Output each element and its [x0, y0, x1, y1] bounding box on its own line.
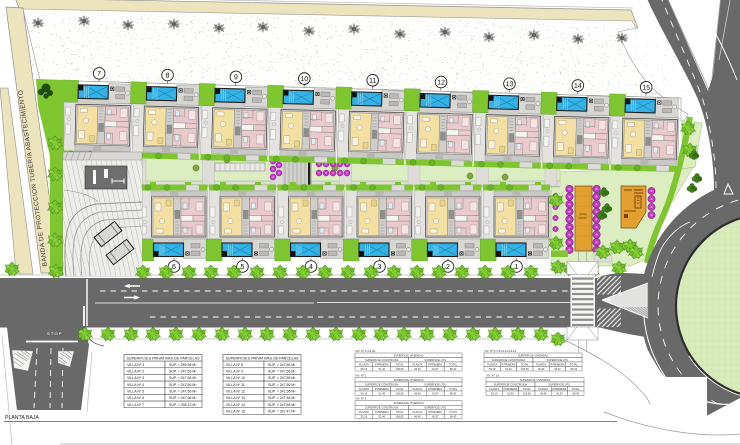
- svg-text:VIV. Nº 1: VIV. Nº 1: [355, 373, 367, 377]
- svg-text:SUPERFICIE CONSTRUIDA: SUPERFICIE CONSTRUIDA: [492, 358, 526, 362]
- svg-text:106,65: 106,65: [523, 391, 531, 395]
- svg-text:SUPERFICIE VIVIENDAS: SUPERFICIE VIVIENDAS: [393, 401, 423, 405]
- svg-text:VIV. Nº 3-4-6 (a): VIV. Nº 3-4-6 (a): [355, 349, 375, 353]
- svg-text:APARC.: APARC.: [578, 216, 588, 220]
- svg-text:PLANTA: PLANTA: [538, 387, 548, 391]
- svg-text:TOTAL: TOTAL: [396, 410, 405, 414]
- svg-text:106,65: 106,65: [396, 367, 404, 371]
- svg-text:VILLA Nº 7: VILLA Nº 7: [127, 403, 144, 407]
- svg-text:VILLA Nº 5: VILLA Nº 5: [127, 390, 144, 394]
- svg-text:P.PRIMERA: P.PRIMERA: [502, 362, 516, 366]
- svg-text:46,46: 46,46: [414, 391, 421, 395]
- svg-text:55,19: 55,19: [489, 367, 496, 371]
- svg-text:89,43: 89,43: [571, 367, 578, 371]
- svg-text:VILLA Nº 4: VILLA Nº 4: [127, 383, 144, 387]
- svg-text:SUP. = 336,13 M²: SUP. = 336,13 M²: [169, 403, 197, 407]
- svg-text:SUPERFICIE UTIL: SUPERFICIE UTIL: [547, 358, 569, 362]
- svg-text:TOTAL: TOTAL: [449, 387, 458, 391]
- svg-text:SUP. = 247,56 M²: SUP. = 247,56 M²: [268, 383, 296, 387]
- svg-text:VILLA Nº 2: VILLA Nº 2: [127, 370, 144, 374]
- svg-text:SUP. = 247,56 M²: SUP. = 247,56 M²: [268, 396, 296, 400]
- svg-text:SUP. = 247,56 M²: SUP. = 247,56 M²: [169, 383, 197, 387]
- svg-text:12: 12: [437, 79, 445, 86]
- svg-text:55,19: 55,19: [491, 391, 498, 395]
- svg-text:2: 2: [446, 264, 450, 271]
- svg-text:P.PRIMERA: P.PRIMERA: [428, 362, 442, 366]
- svg-text:42,97: 42,97: [432, 367, 439, 371]
- svg-text:SUP. = 247,56 M²: SUP. = 247,56 M²: [268, 376, 296, 380]
- svg-text:PLANTA: PLANTA: [412, 410, 422, 414]
- svg-text:3: 3: [378, 264, 382, 271]
- svg-text:10: 10: [300, 76, 308, 83]
- svg-text:SUP. = 247,56 M²: SUP. = 247,56 M²: [268, 403, 296, 407]
- svg-text:VIV. Nº 5-7-9-11-12-13-14: VIV. Nº 5-7-9-11-12-13-14: [484, 349, 517, 353]
- svg-text:PLANTA: PLANTA: [487, 362, 497, 366]
- svg-text:SUP. = 327,47 M²: SUP. = 327,47 M²: [268, 410, 296, 414]
- svg-text:1: 1: [515, 264, 519, 271]
- svg-text:SUPERFICIE CONSTRUIDA: SUPERFICIE CONSTRUIDA: [365, 382, 399, 386]
- svg-text:P.PRIMERA: P.PRIMERA: [375, 387, 389, 391]
- svg-text:SUP. = 247,56 M²: SUP. = 247,56 M²: [268, 370, 296, 374]
- svg-text:SUPERFICIE UTIL: SUPERFICIE UTIL: [424, 382, 446, 386]
- svg-text:42,97: 42,97: [554, 367, 561, 371]
- svg-text:SUPERFICIE CONSTRUIDA: SUPERFICIE CONSTRUIDA: [365, 406, 399, 410]
- svg-text:P.PRIMERA: P.PRIMERA: [375, 362, 389, 366]
- svg-text:5: 5: [241, 264, 245, 271]
- svg-text:TOTAL: TOTAL: [449, 410, 458, 414]
- svg-text:TOTAL: TOTAL: [572, 387, 581, 391]
- svg-text:13: 13: [505, 81, 513, 88]
- svg-text:VIV. Nº 10: VIV. Nº 10: [486, 373, 499, 377]
- svg-text:VILLA Nº 1: VILLA Nº 1: [127, 363, 144, 367]
- svg-text:106,65: 106,65: [521, 367, 529, 371]
- svg-text:46,46: 46,46: [414, 367, 421, 371]
- svg-text:106,65: 106,65: [396, 391, 404, 395]
- svg-text:89,43: 89,43: [573, 391, 580, 395]
- svg-text:9: 9: [234, 74, 238, 81]
- svg-text:SUP. = 247,56 M²: SUP. = 247,56 M²: [169, 376, 197, 380]
- svg-text:VILLA Nº 13: VILLA Nº 13: [226, 396, 245, 400]
- svg-text:P.PRIMERA: P.PRIMERA: [375, 410, 389, 414]
- svg-text:P.PRIMERA: P.PRIMERA: [551, 362, 565, 366]
- svg-text:VILLA Nº 10: VILLA Nº 10: [226, 376, 245, 380]
- svg-text:46,46: 46,46: [414, 415, 421, 419]
- svg-text:PLANTA: PLANTA: [536, 362, 546, 366]
- svg-text:14: 14: [574, 83, 582, 90]
- svg-text:SUP. = 247,56 M²: SUP. = 247,56 M²: [268, 390, 296, 394]
- svg-text:51,46: 51,46: [379, 415, 386, 419]
- svg-text:SUP. = 247,56 M²: SUP. = 247,56 M²: [169, 396, 197, 400]
- svg-text:7: 7: [97, 71, 101, 78]
- svg-text:SUPERFICIE CONSTRUIDA: SUPERFICIE CONSTRUIDA: [365, 358, 399, 362]
- svg-text:55,19: 55,19: [361, 391, 368, 395]
- svg-text:SUPERFICIE VIVIENDAS: SUPERFICIE VIVIENDAS: [393, 353, 423, 357]
- svg-text:SUPERFICIE UTIL: SUPERFICIE UTIL: [424, 406, 446, 410]
- svg-text:VILLA Nº 11: VILLA Nº 11: [226, 383, 245, 387]
- svg-text:106,65: 106,65: [396, 415, 404, 419]
- svg-text:VILLA Nº 9: VILLA Nº 9: [226, 370, 243, 374]
- svg-text:8: 8: [165, 73, 169, 80]
- svg-text:VIV. Nº 2: VIV. Nº 2: [355, 397, 367, 401]
- svg-text:TOTAL: TOTAL: [396, 362, 405, 366]
- svg-text:46,46: 46,46: [540, 391, 547, 395]
- svg-text:11: 11: [369, 78, 377, 85]
- svg-text:STOP: STOP: [47, 331, 63, 336]
- svg-text:TOTAL: TOTAL: [570, 362, 579, 366]
- svg-text:51,46: 51,46: [379, 391, 386, 395]
- svg-text:SUPERFICIES PRIVATIVAS DE PARC: SUPERFICIES PRIVATIVAS DE PARCELAS: [126, 356, 200, 360]
- svg-text:SUPERFICIE VIVIENDAS: SUPERFICIE VIVIENDAS: [518, 353, 548, 357]
- svg-text:VILLA Nº 15: VILLA Nº 15: [226, 410, 245, 414]
- svg-text:SUPERFICIE CONSTRUIDA: SUPERFICIE CONSTRUIDA: [494, 382, 528, 386]
- svg-text:TOTAL: TOTAL: [449, 362, 458, 366]
- svg-text:89,43: 89,43: [450, 391, 457, 395]
- svg-text:51,46: 51,46: [507, 391, 514, 395]
- svg-text:51,46: 51,46: [505, 367, 512, 371]
- svg-text:VILLA Nº 8: VILLA Nº 8: [226, 363, 243, 367]
- svg-text:SUPERFICIE VIVIENDAS: SUPERFICIE VIVIENDAS: [393, 378, 423, 382]
- svg-text:TOTAL: TOTAL: [523, 387, 532, 391]
- svg-text:ZONA: ZONA: [579, 212, 586, 216]
- svg-text:42,97: 42,97: [432, 391, 439, 395]
- svg-text:89,43: 89,43: [450, 415, 457, 419]
- svg-text:SUPERFICIE UTIL: SUPERFICIE UTIL: [424, 358, 446, 362]
- svg-text:46,46: 46,46: [538, 367, 545, 371]
- svg-text:P.PRIMERA: P.PRIMERA: [428, 387, 442, 391]
- svg-text:89,43: 89,43: [450, 367, 457, 371]
- svg-text:PLANTA: PLANTA: [359, 387, 369, 391]
- svg-text:P.PRIMERA: P.PRIMERA: [553, 387, 567, 391]
- svg-text:TOTAL: TOTAL: [396, 387, 405, 391]
- svg-text:P.PRIMERA: P.PRIMERA: [428, 410, 442, 414]
- svg-text:PLANTA: PLANTA: [359, 410, 369, 414]
- svg-text:SUP. = 247,56 M²: SUP. = 247,56 M²: [169, 390, 197, 394]
- svg-text:PLANTA: PLANTA: [412, 387, 422, 391]
- svg-text:42,97: 42,97: [432, 415, 439, 419]
- svg-text:SUPERFICIES PRIVATIVAS DE PARC: SUPERFICIES PRIVATIVAS DE PARCELAS: [225, 356, 299, 360]
- svg-text:PLANTA: PLANTA: [412, 362, 422, 366]
- svg-text:55,19: 55,19: [361, 367, 368, 371]
- svg-text:SUP. = 247,56 M²: SUP. = 247,56 M²: [268, 363, 296, 367]
- svg-text:VILLA Nº 6: VILLA Nº 6: [127, 396, 144, 400]
- svg-text:51,46: 51,46: [379, 367, 386, 371]
- svg-text:SUP. = 247,56 M²: SUP. = 247,56 M²: [169, 370, 197, 374]
- svg-text:SUPERFICIE VIVIENDAS: SUPERFICIE VIVIENDAS: [520, 378, 550, 382]
- svg-text:PLANTA: PLANTA: [359, 362, 369, 366]
- svg-text:SUPERFICIE UTIL: SUPERFICIE UTIL: [549, 382, 571, 386]
- svg-text:VILLA Nº 3: VILLA Nº 3: [127, 376, 144, 380]
- svg-text:PLANTA: PLANTA: [489, 387, 499, 391]
- svg-text:42,97: 42,97: [556, 391, 563, 395]
- svg-text:VILLA Nº 12: VILLA Nº 12: [226, 390, 245, 394]
- svg-text:VILLA Nº 14: VILLA Nº 14: [226, 403, 245, 407]
- svg-text:SUP. = 289,98 M²: SUP. = 289,98 M²: [169, 363, 197, 367]
- svg-text:TOTAL: TOTAL: [521, 362, 530, 366]
- svg-text:15: 15: [642, 85, 650, 92]
- svg-text:55,19: 55,19: [361, 415, 368, 419]
- svg-text:P.PRIMERA: P.PRIMERA: [504, 387, 518, 391]
- svg-text:PLANTA BAJA: PLANTA BAJA: [5, 415, 39, 421]
